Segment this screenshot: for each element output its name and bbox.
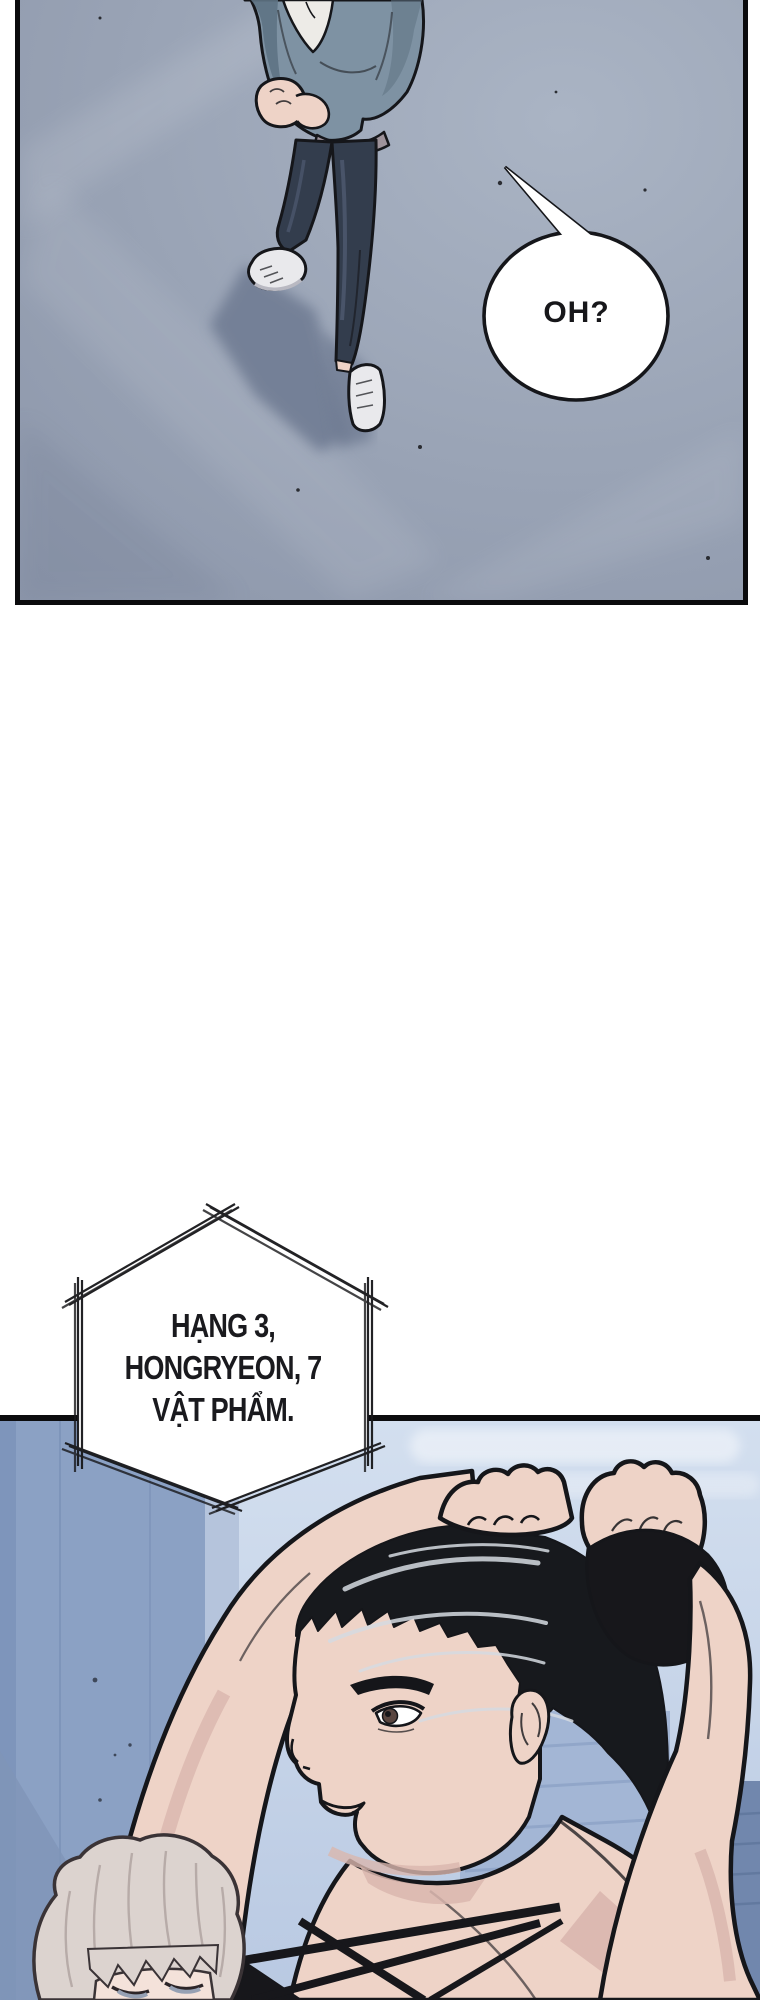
caption-line: VẬT PHẨM.: [88, 1389, 359, 1431]
caption-text: HẠNG 3, HONGRYEON, 7 VẬT PHẨM.: [58, 1305, 388, 1431]
panel-rooftop-overhead: OH?: [15, 0, 748, 605]
comic-page: OH?: [0, 0, 760, 2000]
right-shoe: [349, 365, 385, 431]
caption-line: HONGRYEON, 7: [88, 1347, 359, 1389]
speech-bubble-text: OH?: [484, 296, 669, 330]
caption-hexagon: HẠNG 3, HONGRYEON, 7 VẬT PHẨM.: [40, 1195, 412, 1530]
caption-line: HẠNG 3,: [88, 1305, 359, 1347]
